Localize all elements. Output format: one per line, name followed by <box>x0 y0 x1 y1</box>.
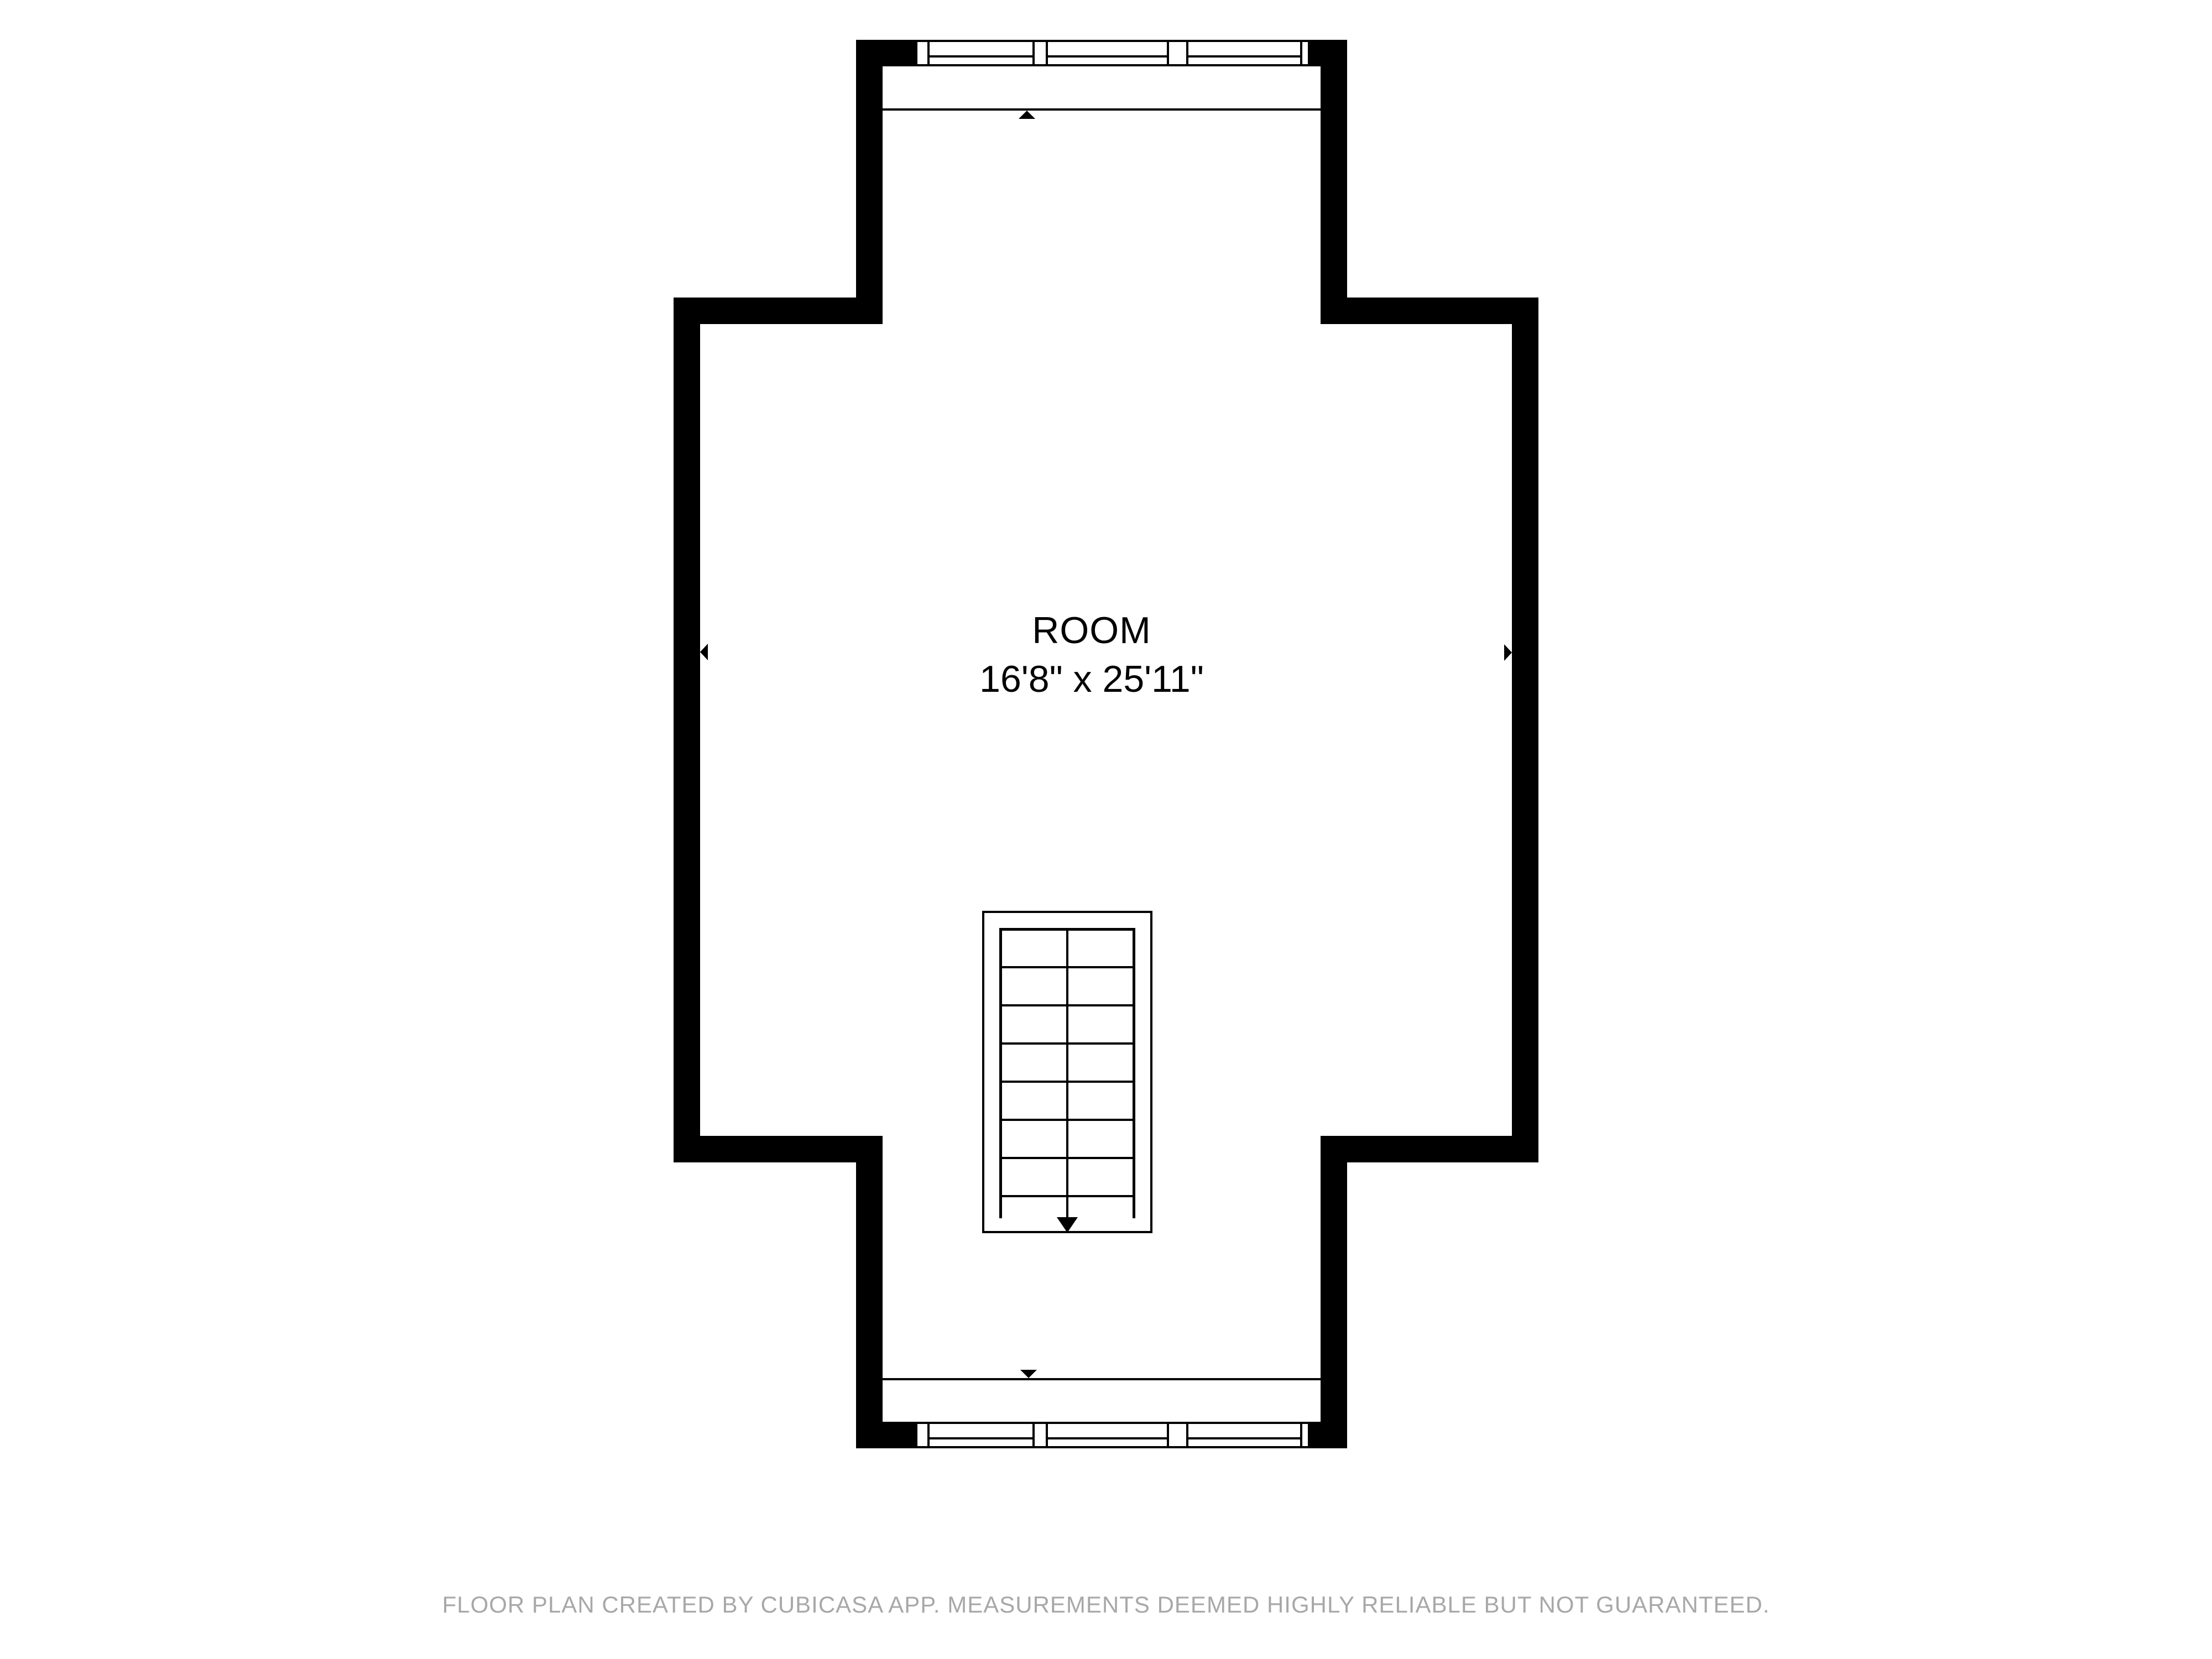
window-mullion-line <box>1167 42 1169 64</box>
wall-step-bottom-right <box>1321 1136 1538 1162</box>
arrow-right-icon <box>1504 644 1512 661</box>
wall-main-right <box>1512 298 1538 1162</box>
window-glass-line <box>930 1437 1032 1439</box>
wall-top-box-left <box>856 40 883 324</box>
window-mullion-line <box>1046 1424 1048 1446</box>
window-mullion-line <box>1186 1424 1188 1446</box>
window-frame-line <box>927 1424 930 1446</box>
ceiling-break-line-top <box>883 108 1321 111</box>
room-name: ROOM <box>700 607 1483 654</box>
window-glass-line <box>1048 1437 1167 1439</box>
window-glass-line <box>1188 55 1300 58</box>
wall-main-left <box>674 298 700 1162</box>
arrow-up-icon <box>1019 111 1035 119</box>
wall-bottom-box-left <box>856 1136 883 1448</box>
window-glass-line <box>1048 55 1167 58</box>
arrow-down-icon <box>1020 1370 1037 1378</box>
window-mullion-line <box>1032 1424 1035 1446</box>
staircase <box>982 911 1152 1233</box>
footer-disclaimer: FLOOR PLAN CREATED BY CUBICASA APP. MEAS… <box>0 1592 2212 1618</box>
window-frame-line <box>1300 1424 1302 1446</box>
window-mullion-line <box>1046 42 1048 64</box>
ceiling-break-line-bottom <box>883 1378 1321 1380</box>
stair-center-rail <box>1066 931 1068 1217</box>
window-glass-line <box>1188 1437 1300 1439</box>
window-glass-line <box>930 55 1032 58</box>
window-frame-line <box>1300 42 1302 64</box>
window-bottom <box>915 1422 1310 1448</box>
room-label: ROOM 16'8" x 25'11" <box>700 607 1483 702</box>
floor-plan-canvas: ROOM 16'8" x 25'11" FLOOR PLAN CREATED B… <box>0 0 2212 1659</box>
wall-bottom-box-right <box>1321 1136 1347 1448</box>
wall-step-top-right <box>1321 298 1538 324</box>
window-frame-line <box>927 42 930 64</box>
room-dimensions: 16'8" x 25'11" <box>700 656 1483 702</box>
arrow-down-icon <box>1057 1217 1078 1233</box>
wall-top-box-right <box>1321 40 1347 324</box>
window-top <box>915 40 1310 66</box>
window-mullion-line <box>1167 1424 1169 1446</box>
window-mullion-line <box>1186 42 1188 64</box>
wall-step-bottom-left <box>674 1136 883 1162</box>
wall-step-top-left <box>674 298 883 324</box>
staircase-treads <box>999 928 1135 1218</box>
window-mullion-line <box>1032 42 1035 64</box>
